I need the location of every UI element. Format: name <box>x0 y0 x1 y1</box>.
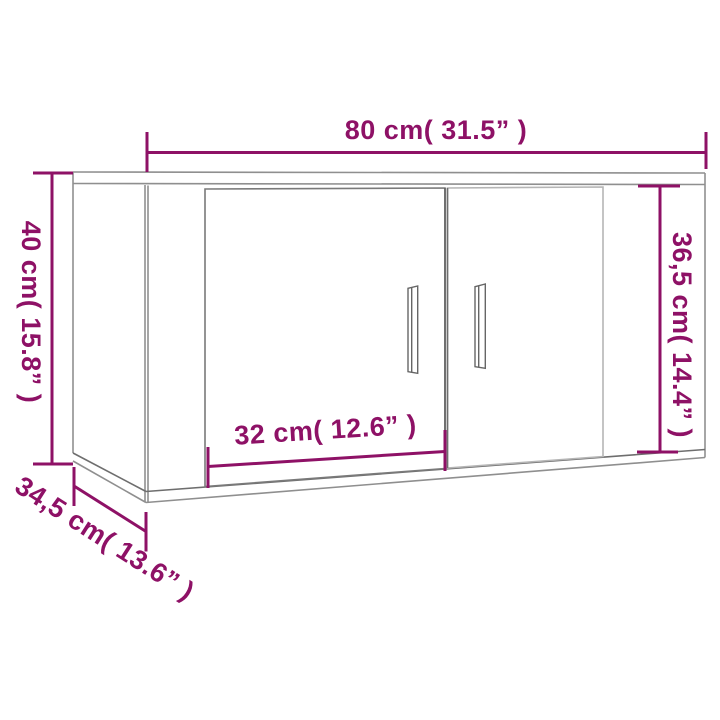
cabinet-right-door <box>448 187 604 468</box>
width-dimension: 80 cm( 31.5” ) <box>147 115 706 172</box>
height-dimension: 40 cm( 15.8” ) <box>16 173 73 464</box>
door-height-dimension: 36,5 cm( 14.4” ) <box>637 186 697 452</box>
height-dimension-label: 40 cm( 15.8” ) <box>16 221 46 404</box>
left-door-handle <box>408 286 418 373</box>
depth-dimension-label: 34,5 cm( 13.6” ) <box>10 470 200 606</box>
product-dimension-diagram: 80 cm( 31.5” ) 40 cm( 15.8” ) 36,5 cm( 1… <box>0 0 720 720</box>
cabinet <box>73 172 705 503</box>
width-dimension-label: 80 cm( 31.5” ) <box>345 115 528 145</box>
cabinet-dimension-drawing: 80 cm( 31.5” ) 40 cm( 15.8” ) 36,5 cm( 1… <box>0 0 720 720</box>
depth-dimension: 34,5 cm( 13.6” ) <box>10 467 200 606</box>
cabinet-top-panel <box>73 172 705 185</box>
right-door-handle <box>475 284 485 368</box>
door-height-dimension-label: 36,5 cm( 14.4” ) <box>667 232 697 438</box>
